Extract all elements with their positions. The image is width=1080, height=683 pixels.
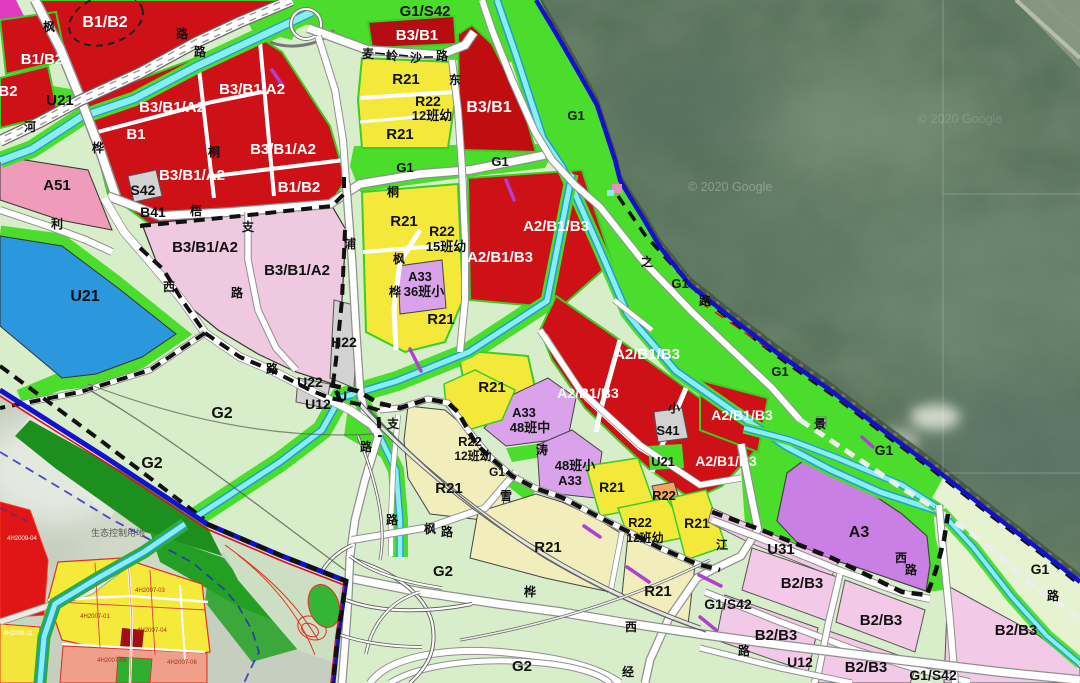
svg-text:西: 西 bbox=[625, 620, 637, 634]
svg-text:R21: R21 bbox=[435, 480, 463, 497]
svg-text:A2/B1/B3: A2/B1/B3 bbox=[614, 346, 680, 363]
svg-text:36班小: 36班小 bbox=[404, 284, 444, 299]
svg-text:B3/B1/A2: B3/B1/A2 bbox=[250, 141, 316, 158]
svg-text:A2/B1/B3: A2/B1/B3 bbox=[557, 385, 619, 401]
svg-text:R21: R21 bbox=[392, 71, 420, 88]
svg-text:经: 经 bbox=[622, 664, 634, 679]
svg-text:西: 西 bbox=[163, 280, 175, 294]
svg-text:G1: G1 bbox=[875, 442, 894, 458]
svg-text:G2: G2 bbox=[141, 455, 162, 472]
svg-text:48班中: 48班中 bbox=[510, 420, 550, 435]
svg-text:生态控制用地: 生态控制用地 bbox=[91, 527, 145, 538]
svg-text:S41: S41 bbox=[656, 423, 679, 438]
svg-text:G2: G2 bbox=[433, 563, 453, 580]
svg-text:路: 路 bbox=[231, 285, 244, 300]
svg-text:路: 路 bbox=[194, 44, 207, 59]
svg-text:支: 支 bbox=[241, 219, 255, 234]
svg-text:R21: R21 bbox=[644, 583, 672, 600]
svg-text:R22: R22 bbox=[652, 488, 676, 503]
svg-text:A2/B1/B3: A2/B1/B3 bbox=[695, 453, 757, 469]
svg-text:东: 东 bbox=[449, 72, 461, 87]
svg-text:12班幼: 12班幼 bbox=[412, 108, 452, 123]
svg-text:支: 支 bbox=[386, 416, 400, 431]
svg-text:桦: 桦 bbox=[92, 140, 104, 155]
svg-text:路: 路 bbox=[905, 562, 918, 577]
svg-text:路: 路 bbox=[738, 643, 751, 658]
svg-text:G1: G1 bbox=[1031, 561, 1050, 577]
svg-text:B3/B1/A2: B3/B1/A2 bbox=[264, 262, 330, 279]
svg-text:B2/B3: B2/B3 bbox=[755, 627, 798, 644]
svg-text:桦: 桦 bbox=[524, 584, 536, 599]
svg-text:B1: B1 bbox=[126, 126, 145, 143]
svg-text:浦: 浦 bbox=[344, 236, 356, 251]
svg-text:B3/B1: B3/B1 bbox=[396, 27, 439, 44]
svg-text:R21: R21 bbox=[386, 126, 414, 143]
svg-text:U22: U22 bbox=[297, 374, 323, 390]
svg-text:R21: R21 bbox=[684, 515, 710, 531]
svg-text:B2: B2 bbox=[0, 83, 18, 100]
svg-text:R22: R22 bbox=[429, 223, 455, 239]
svg-text:G1/S42: G1/S42 bbox=[400, 3, 451, 20]
svg-text:枫: 枫 bbox=[424, 521, 436, 536]
svg-text:U21: U21 bbox=[651, 454, 675, 469]
svg-text:路: 路 bbox=[386, 512, 399, 527]
svg-text:15班幼: 15班幼 bbox=[426, 239, 466, 254]
svg-text:沙: 沙 bbox=[410, 51, 422, 65]
svg-text:路: 路 bbox=[441, 524, 454, 539]
svg-text:路: 路 bbox=[266, 361, 279, 376]
svg-text:G2: G2 bbox=[211, 405, 232, 422]
svg-text:B3/B1/A2: B3/B1/A2 bbox=[139, 99, 205, 116]
svg-text:A33: A33 bbox=[408, 269, 432, 284]
svg-text:G2: G2 bbox=[512, 658, 532, 675]
svg-text:12班幼: 12班幼 bbox=[454, 448, 491, 463]
svg-text:桦: 桦 bbox=[389, 284, 401, 299]
svg-text:4H2009-04: 4H2009-04 bbox=[7, 536, 37, 542]
svg-text:路: 路 bbox=[360, 439, 373, 454]
svg-text:路: 路 bbox=[176, 26, 189, 41]
svg-text:© 2020 Google: © 2020 Google bbox=[918, 112, 1002, 126]
svg-text:© 2020 Google: © 2020 Google bbox=[688, 180, 772, 194]
svg-text:R21: R21 bbox=[599, 479, 625, 495]
svg-text:桐: 桐 bbox=[387, 184, 399, 199]
svg-text:R21: R21 bbox=[534, 539, 562, 556]
svg-text:小: 小 bbox=[668, 400, 680, 415]
svg-text:4H2007-01: 4H2007-01 bbox=[80, 614, 110, 620]
svg-text:B3/B1/A2: B3/B1/A2 bbox=[219, 81, 285, 98]
svg-text:景: 景 bbox=[814, 417, 826, 431]
svg-text:之: 之 bbox=[641, 254, 653, 269]
svg-text:12班幼: 12班幼 bbox=[626, 530, 663, 545]
svg-text:B3/B1: B3/B1 bbox=[466, 99, 511, 116]
svg-text:江: 江 bbox=[716, 537, 728, 552]
svg-text:利: 利 bbox=[51, 216, 63, 231]
svg-text:U12: U12 bbox=[305, 396, 331, 412]
svg-text:涛: 涛 bbox=[536, 442, 548, 457]
svg-text:U12: U12 bbox=[787, 654, 813, 670]
svg-text:A3: A3 bbox=[849, 524, 870, 541]
svg-text:枫: 枫 bbox=[393, 251, 405, 266]
svg-text:B1/B2: B1/B2 bbox=[21, 51, 64, 68]
svg-text:A2/B1/B3: A2/B1/B3 bbox=[523, 218, 589, 235]
svg-text:R21: R21 bbox=[390, 213, 418, 230]
svg-text:B1/B2: B1/B2 bbox=[82, 14, 127, 31]
svg-text:路: 路 bbox=[699, 293, 712, 308]
svg-text:B3/B1/A2: B3/B1/A2 bbox=[159, 167, 225, 184]
svg-text:路: 路 bbox=[1047, 588, 1060, 603]
svg-text:G1: G1 bbox=[489, 465, 505, 479]
svg-text:B2/B3: B2/B3 bbox=[860, 612, 903, 629]
svg-text:河: 河 bbox=[23, 119, 36, 134]
svg-text:G1: G1 bbox=[771, 364, 788, 379]
svg-text:U31: U31 bbox=[767, 541, 795, 558]
svg-text:B2/B3: B2/B3 bbox=[845, 659, 888, 676]
svg-text:A2/B1/B3: A2/B1/B3 bbox=[711, 407, 773, 423]
svg-text:B1/B2: B1/B2 bbox=[278, 179, 321, 196]
svg-text:B3/B1/A2: B3/B1/A2 bbox=[172, 239, 238, 256]
svg-text:S42: S42 bbox=[131, 182, 156, 198]
svg-text:G1: G1 bbox=[491, 154, 508, 169]
svg-text:A2/B1/B3: A2/B1/B3 bbox=[467, 249, 533, 266]
svg-text:U: U bbox=[337, 388, 347, 404]
svg-text:4H2007-04: 4H2007-04 bbox=[137, 628, 167, 634]
svg-text:R21: R21 bbox=[427, 311, 455, 328]
svg-text:4H2007-05: 4H2007-05 bbox=[97, 658, 127, 664]
svg-text:G1: G1 bbox=[567, 108, 584, 123]
svg-text:A51: A51 bbox=[43, 177, 71, 194]
svg-text:雪: 雪 bbox=[500, 489, 512, 503]
svg-text:B2/B3: B2/B3 bbox=[995, 622, 1038, 639]
svg-text:梧: 梧 bbox=[190, 203, 202, 218]
svg-text:G1/S42: G1/S42 bbox=[704, 596, 752, 612]
svg-text:U21: U21 bbox=[46, 92, 74, 109]
svg-text:B2/B3: B2/B3 bbox=[781, 575, 824, 592]
svg-text:G1/S42: G1/S42 bbox=[909, 667, 957, 683]
svg-text:4H2007-03: 4H2007-03 bbox=[135, 588, 165, 594]
svg-text:4H2009-11: 4H2009-11 bbox=[3, 631, 33, 637]
svg-text:U21: U21 bbox=[70, 288, 99, 305]
svg-text:R21: R21 bbox=[478, 379, 506, 396]
svg-text:麦: 麦 bbox=[362, 46, 375, 61]
svg-text:路: 路 bbox=[436, 48, 449, 63]
svg-text:B41: B41 bbox=[140, 204, 166, 220]
svg-text:R22: R22 bbox=[458, 434, 482, 449]
svg-text:枫: 枫 bbox=[43, 19, 55, 34]
svg-text:桐: 桐 bbox=[208, 144, 220, 159]
svg-text:R22: R22 bbox=[415, 93, 441, 109]
svg-text:G1: G1 bbox=[671, 276, 688, 291]
svg-text:R22: R22 bbox=[628, 515, 652, 530]
svg-text:H22: H22 bbox=[331, 334, 357, 350]
svg-text:4H2007-06: 4H2007-06 bbox=[167, 660, 197, 666]
svg-text:G1: G1 bbox=[396, 160, 413, 175]
svg-text:岭: 岭 bbox=[386, 48, 398, 63]
svg-text:A33: A33 bbox=[558, 473, 582, 488]
svg-text:48班小: 48班小 bbox=[555, 458, 595, 473]
svg-text:A33: A33 bbox=[512, 405, 536, 420]
